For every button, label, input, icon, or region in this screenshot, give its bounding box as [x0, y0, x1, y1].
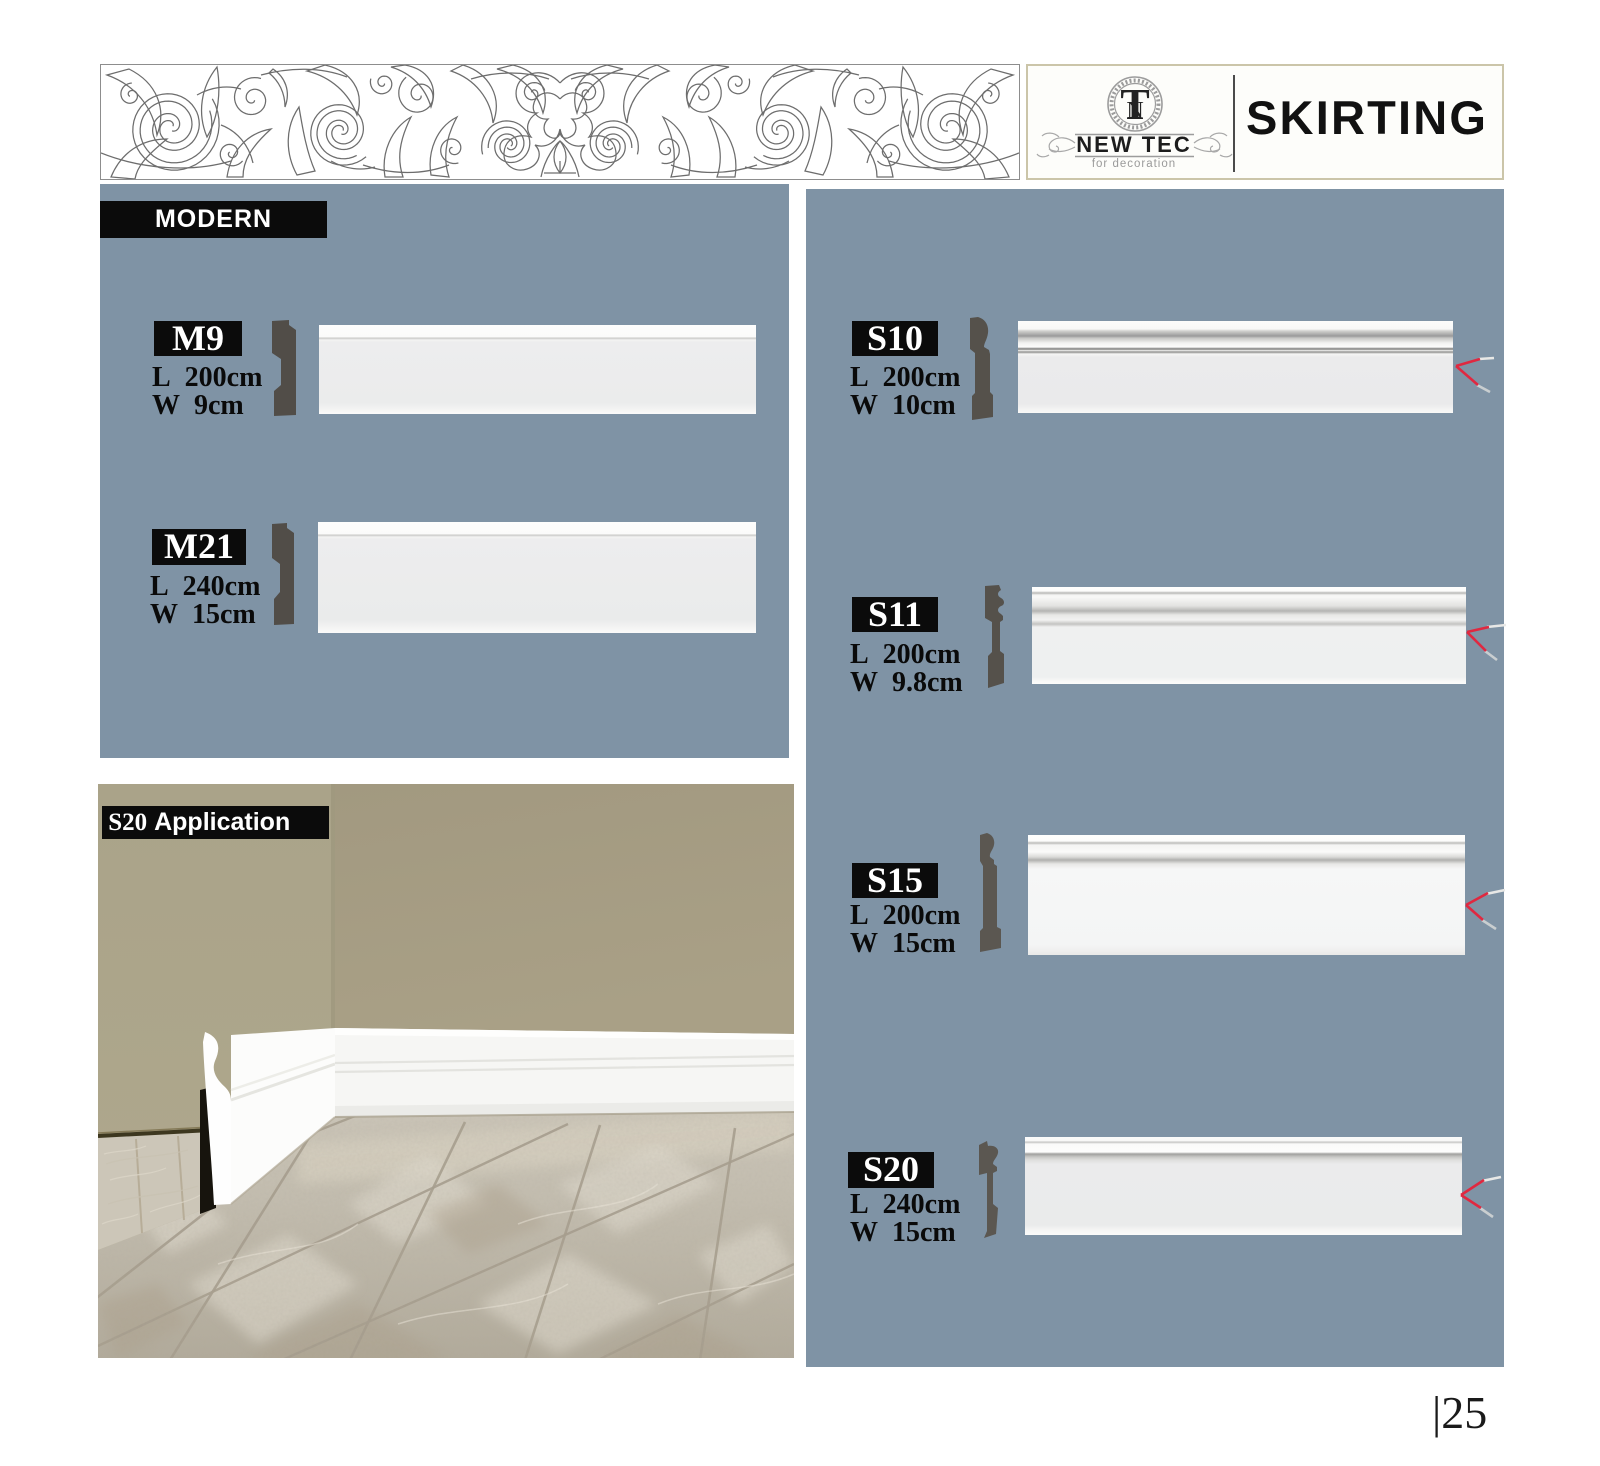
svg-text:NEW TEC: NEW TEC: [1076, 132, 1191, 157]
svg-text:N: N: [1126, 98, 1143, 124]
svg-text:for decoration: for decoration: [1092, 158, 1176, 170]
